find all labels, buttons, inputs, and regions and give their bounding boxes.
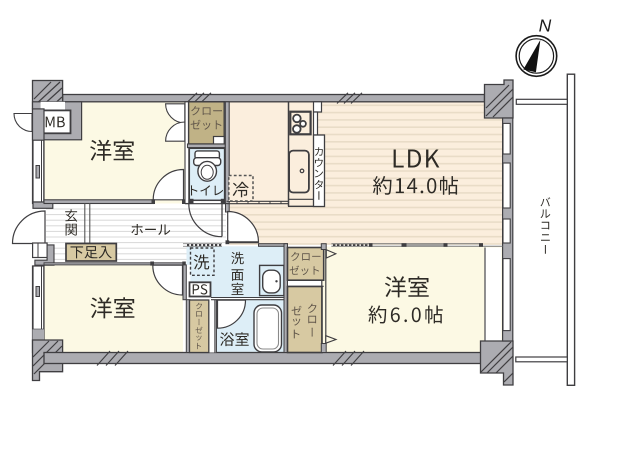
svg-text:N: N [539,16,552,36]
